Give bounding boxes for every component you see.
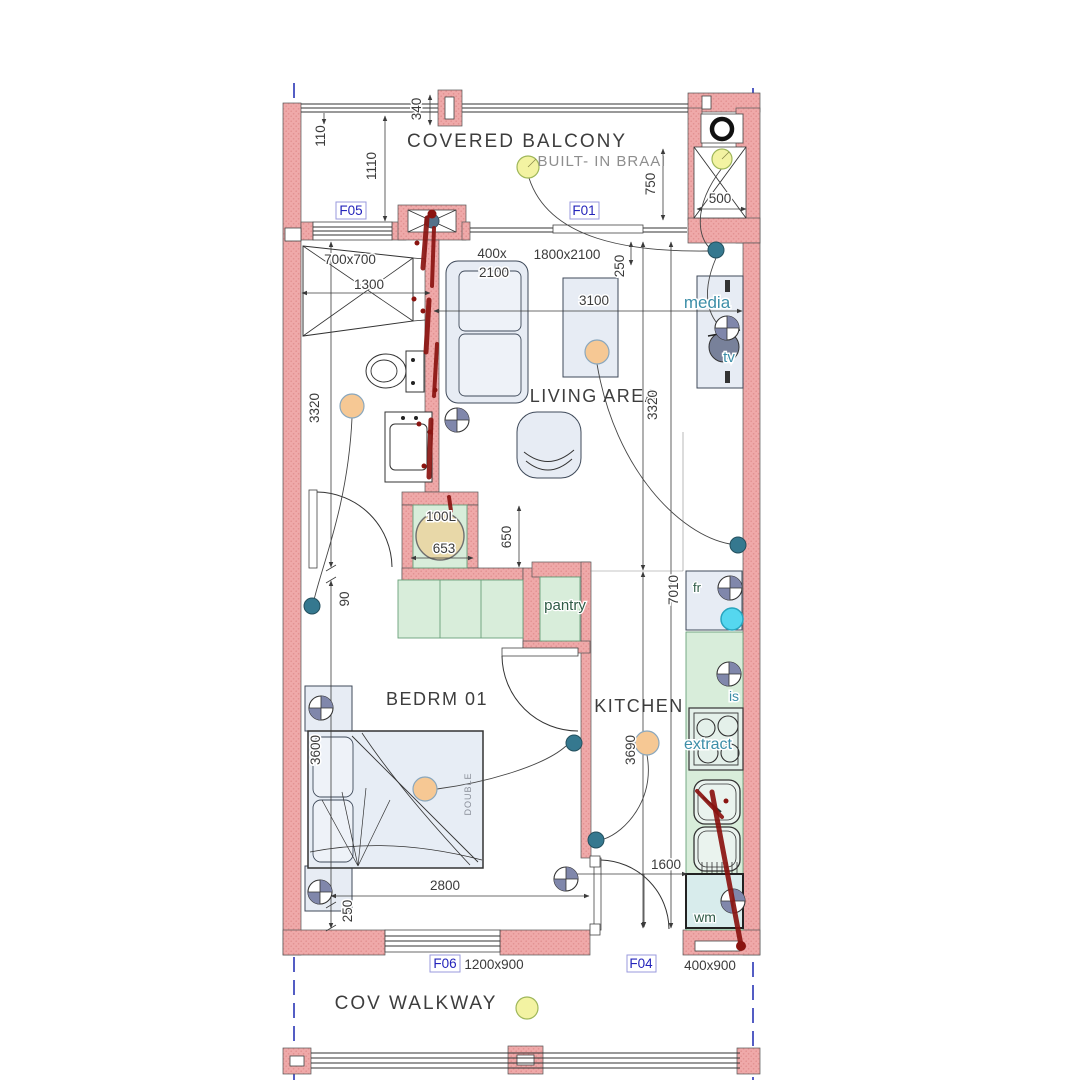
switch-bathroom: [304, 598, 320, 614]
dim-90: 90: [337, 591, 352, 606]
floor-plan-page: COVERED BALCONY BUILT- IN BRAAI LIVING A…: [0, 0, 1080, 1080]
socket-bedroom-3: [554, 867, 578, 891]
dim-1110: 1110: [364, 152, 379, 180]
tag-f01-text: F01: [572, 203, 595, 218]
bathroom-door: [309, 490, 392, 568]
label-geyser: 100L: [426, 509, 457, 524]
dim-653: 653: [433, 541, 456, 556]
dim-1300: 1300: [354, 277, 384, 292]
dim-3100: 3100: [579, 293, 609, 308]
light-bathroom: [340, 394, 364, 418]
window-f04-slot: [695, 941, 740, 951]
label-built-in-braai: BUILT- IN BRAAI: [538, 153, 667, 170]
label-media: media: [684, 293, 731, 312]
dim-f04-size: 400x900: [684, 958, 736, 973]
dim-3320-right: 3320: [645, 390, 660, 420]
dim-1800x2100: 1800x2100: [534, 247, 601, 262]
dim-500: 500: [709, 191, 732, 206]
column-slot: [290, 1056, 304, 1066]
wall-joint-notch: [285, 228, 301, 241]
dim-110: 110: [313, 125, 328, 147]
socket-isolator: [717, 662, 741, 686]
toilet: [366, 351, 424, 392]
sliding-door-f01: [470, 225, 687, 233]
dim-250-bottom: 250: [340, 900, 355, 923]
label-fridge: fr: [693, 580, 702, 595]
socket-living: [445, 408, 469, 432]
label-pantry: pantry: [544, 597, 586, 614]
dim-750: 750: [643, 173, 658, 196]
dim-3690: 3690: [623, 735, 638, 765]
label-extract: extract: [684, 736, 733, 753]
sofa: [446, 261, 528, 403]
tag-f04-text: F04: [629, 956, 653, 971]
tag-f05: F05: [336, 202, 366, 219]
tag-f06: F06: [430, 955, 460, 972]
light-bedroom: [413, 777, 437, 801]
socket-bedroom-2: [308, 880, 332, 904]
label-bed-double: DOUBLE: [463, 772, 473, 815]
armchair: [517, 412, 581, 478]
socket-fridge: [718, 576, 742, 600]
dim-340: 340: [409, 98, 424, 121]
dim-f06-size: 1200x900: [464, 957, 523, 972]
tag-f01: F01: [570, 202, 599, 219]
dim-shower: 700x700: [324, 252, 376, 267]
room-label-living: LIVING AREA: [530, 386, 659, 406]
dim-2800: 2800: [430, 878, 460, 893]
dim-7010: 7010: [666, 575, 681, 605]
basin: [385, 412, 432, 482]
braai-flue: [701, 114, 743, 143]
ceiling-light-braai: [712, 149, 732, 169]
dim-250-top: 250: [612, 255, 627, 278]
bedroom-cupboards: [398, 580, 523, 638]
balcony-balustrade: [301, 90, 688, 126]
tag-f04: F04: [627, 955, 656, 972]
dim-3600: 3600: [308, 735, 323, 765]
double-bed: [308, 731, 483, 868]
window-f06: [385, 930, 500, 952]
floor-plan-drawing: COVERED BALCONY BUILT- IN BRAAI LIVING A…: [0, 0, 1080, 1080]
label-washing-machine: wm: [693, 909, 716, 925]
dim-3320-left: 3320: [307, 393, 322, 423]
label-tv: tv: [723, 349, 735, 366]
bedroom-door: [502, 648, 578, 731]
light-living: [585, 340, 609, 364]
switch-entrance: [708, 242, 724, 258]
tag-f06-text: F06: [433, 956, 456, 971]
room-label-kitchen: KITCHEN: [594, 696, 684, 716]
ceiling-light-walkway: [516, 997, 538, 1019]
window-f05: [313, 222, 392, 240]
room-label-walkway: COV WALKWAY: [335, 993, 498, 1014]
switch-bedroom: [566, 735, 582, 751]
parapet-slot: [702, 96, 711, 109]
dim-400x: 400x: [477, 246, 507, 261]
dim-650: 650: [499, 526, 514, 549]
dim-1600: 1600: [651, 857, 681, 872]
socket-tv: [715, 316, 739, 340]
room-label-bedroom: BEDRM 01: [386, 689, 488, 709]
tag-f05-text: F05: [339, 203, 362, 218]
ceiling-light-balcony: [517, 156, 539, 178]
label-isolator: is: [729, 688, 739, 704]
room-label-balcony: COVERED BALCONY: [407, 131, 627, 152]
socket-bedroom-1: [309, 696, 333, 720]
switch-kitchen: [588, 832, 604, 848]
isolator-point: [721, 608, 743, 630]
light-kitchen: [635, 731, 659, 755]
switch-living: [730, 537, 746, 553]
dim-2100: 2100: [479, 265, 509, 280]
